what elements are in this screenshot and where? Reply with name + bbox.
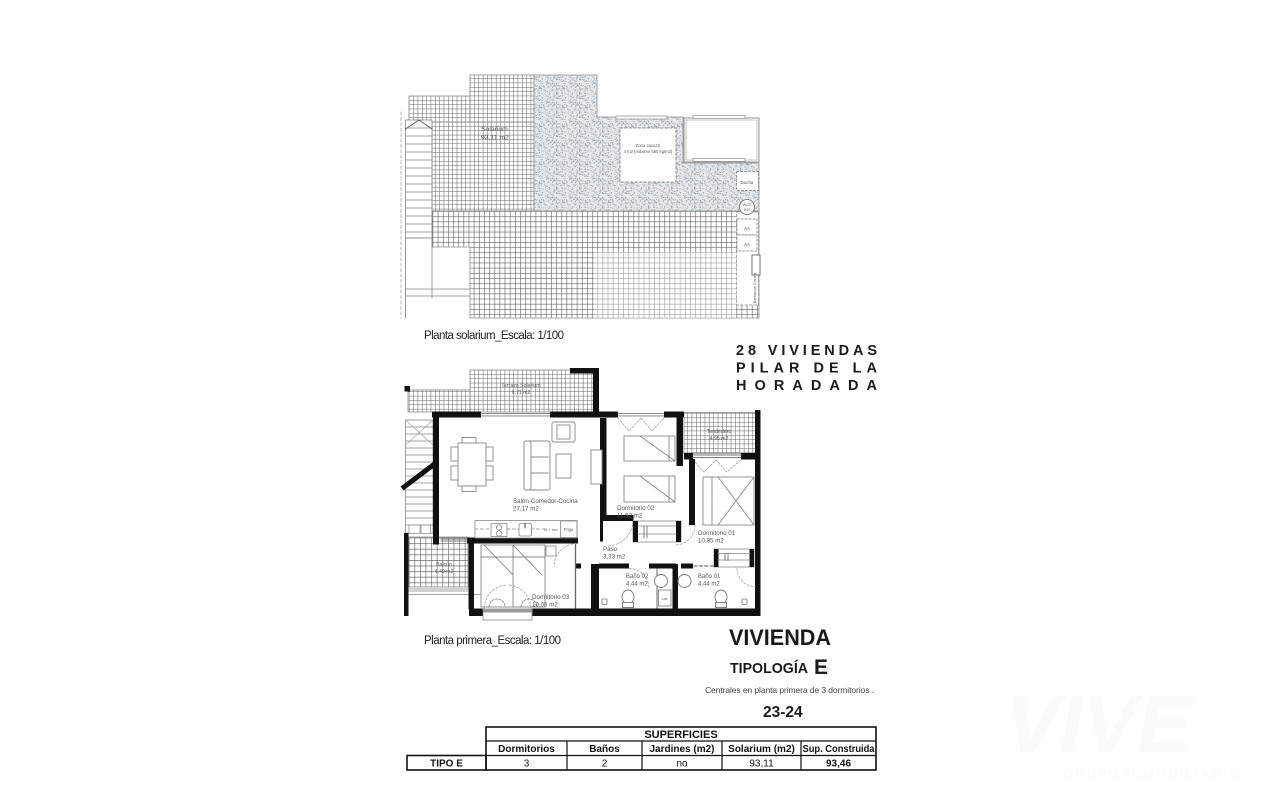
svg-text:INT: INT [744,207,751,212]
svg-text:27,17 m2: 27,17 m2 [513,506,539,513]
svg-text:Centrales en planta primera de: Centrales en planta primera de 3 dormito… [705,685,874,695]
svg-text:GRUPO INMOBILIARIO: GRUPO INMOBILIARIO [1063,766,1241,781]
svg-text:4,44 m2: 4,44 m2 [626,582,648,588]
svg-text:SUPERFICIES: SUPERFICIES [644,729,717,741]
svg-text:VIVIENDA: VIVIENDA [729,625,831,650]
svg-text:Salón-Comedor-Cocina: Salón-Comedor-Cocina [513,498,578,505]
svg-text:Dormitorio 03: Dormitorio 03 [532,594,570,601]
svg-text:Baño 02: Baño 02 [626,574,649,580]
svg-text:Dormitorios: Dormitorios [498,744,555,755]
svg-text:93,11 m2: 93,11 m2 [481,135,509,142]
svg-text:Frigo: Frigo [564,527,574,532]
svg-text:AA: AA [744,226,750,231]
svg-text:Sup. Construida: Sup. Construida [803,744,875,755]
svg-text:Dormitorio 01: Dormitorio 01 [698,530,736,537]
svg-text:Solarium (m2): Solarium (m2) [728,744,795,755]
svg-text:Balcón: Balcón [436,562,452,568]
svg-text:10,85 m2: 10,85 m2 [698,538,724,545]
svg-text:Dormitorio 02: Dormitorio 02 [617,505,655,512]
svg-text:Jardines (m2): Jardines (m2) [649,744,714,755]
svg-text:Baño 01: Baño 01 [698,574,721,580]
svg-text:4,49 m2: 4,49 m2 [435,569,454,575]
svg-text:Lav: Lav [661,597,667,601]
svg-text:23-24: 23-24 [763,704,803,721]
svg-text:11,52 m2: 11,52 m2 [617,513,643,520]
svg-text:E: E [814,656,828,679]
svg-text:Planta solarium_Escala: 1/100: Planta solarium_Escala: 1/100 [424,330,564,342]
svg-text:93,46: 93,46 [826,759,851,770]
svg-text:Solarium: Solarium [481,126,508,133]
svg-text:93,11: 93,11 [749,759,774,770]
svg-text:M + sec: M + sec [544,528,558,532]
svg-text:4,95 m2: 4,95 m2 [710,436,729,442]
svg-text:Ducha: Ducha [741,180,754,185]
svg-text:AA: AA [744,242,750,247]
svg-text:Barbacoa Cocina: Barbacoa Cocina [752,272,757,303]
svg-text:Paso: Paso [603,546,618,553]
svg-text:Terraza Solarium: Terraza Solarium [501,383,540,389]
svg-text:Planta primera_Escala: 1/100: Planta primera_Escala: 1/100 [424,635,561,647]
svg-text:4 m2 (máximo 560 kg/m2): 4 m2 (máximo 560 kg/m2) [624,149,673,154]
svg-text:3: 3 [524,759,530,770]
svg-text:Tendedero: Tendedero [707,429,732,435]
svg-text:TIPOLOGÍA: TIPOLOGÍA [730,660,808,677]
svg-text:2: 2 [602,759,608,770]
svg-text:9,71 m2: 9,71 m2 [512,390,531,396]
svg-text:no: no [676,759,688,770]
svg-text:VIVE: VIVE [1005,679,1194,770]
svg-text:Zona Jacuzzi: Zona Jacuzzi [636,143,661,148]
svg-text:Baños: Baños [589,744,620,755]
svg-text:3,33 m2: 3,33 m2 [603,554,626,561]
svg-text:TIPO E: TIPO E [430,759,463,770]
svg-text:10,05 m2: 10,05 m2 [532,602,558,609]
svg-text:4,44 m2: 4,44 m2 [698,582,720,588]
